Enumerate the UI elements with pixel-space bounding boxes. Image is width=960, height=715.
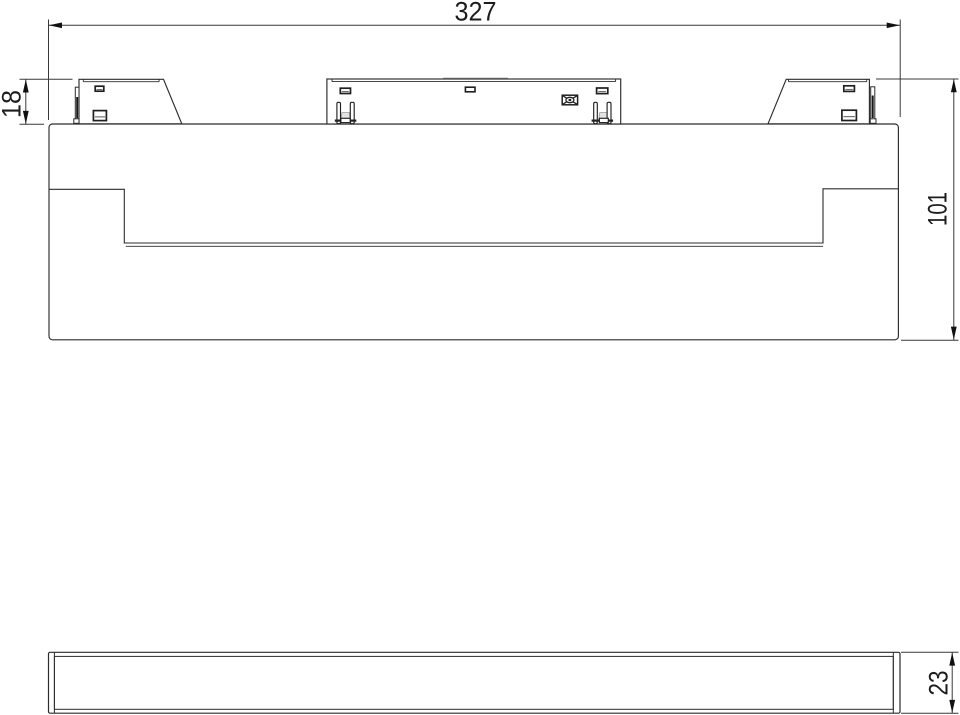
svg-text:101: 101 (922, 192, 952, 226)
svg-text:23: 23 (924, 671, 954, 696)
svg-text:18: 18 (0, 90, 27, 118)
svg-text:327: 327 (455, 0, 497, 27)
